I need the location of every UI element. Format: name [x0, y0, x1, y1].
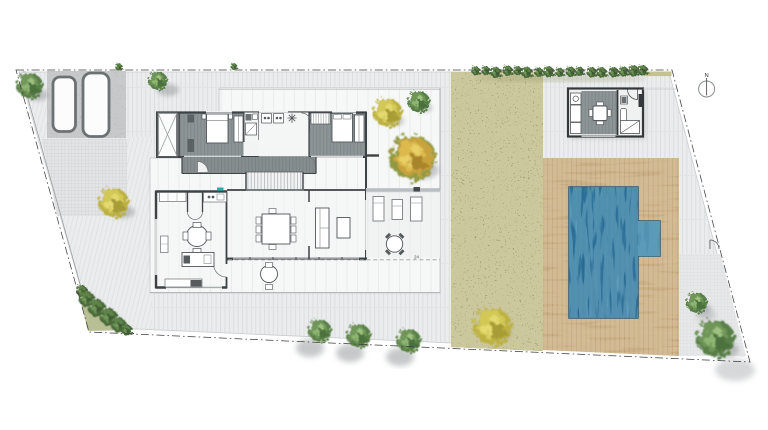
svg-text:N: N: [705, 73, 709, 79]
svg-text:24: 24: [414, 255, 420, 260]
